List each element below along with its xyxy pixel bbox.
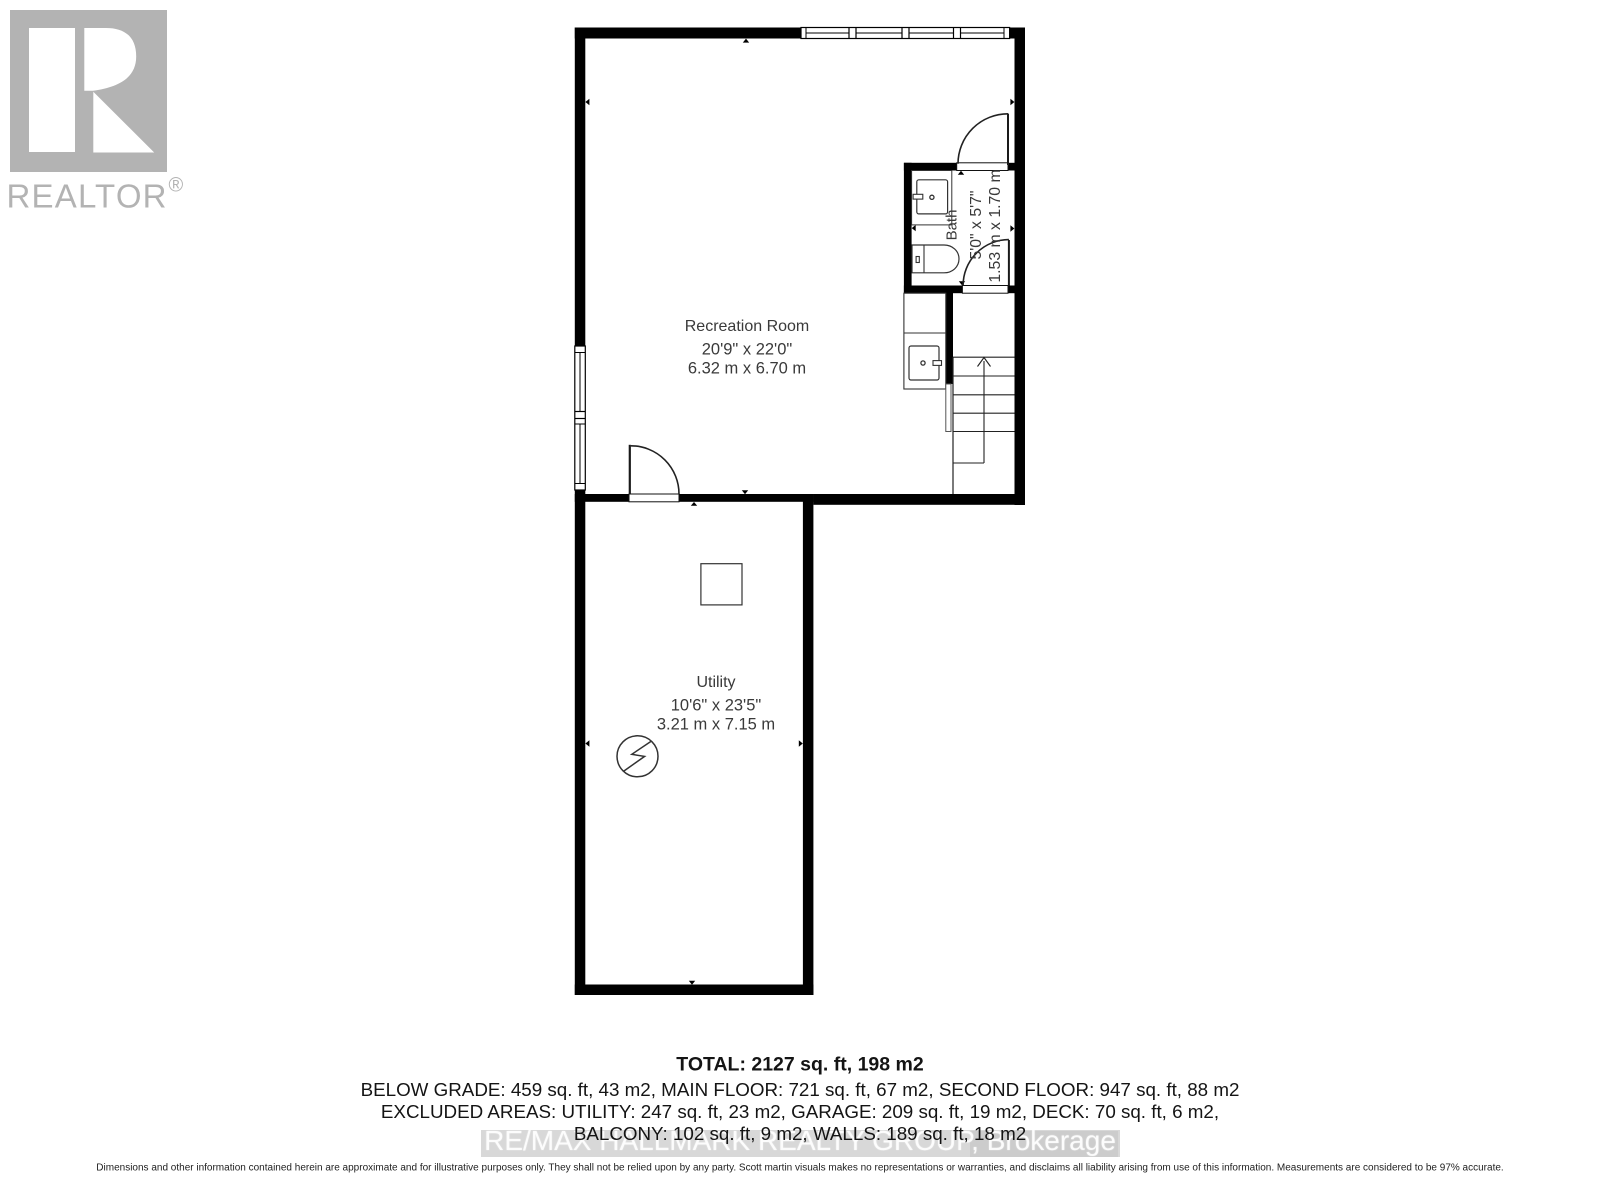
- svg-text:REALTOR: REALTOR: [7, 178, 168, 215]
- svg-text:®: ®: [169, 175, 184, 197]
